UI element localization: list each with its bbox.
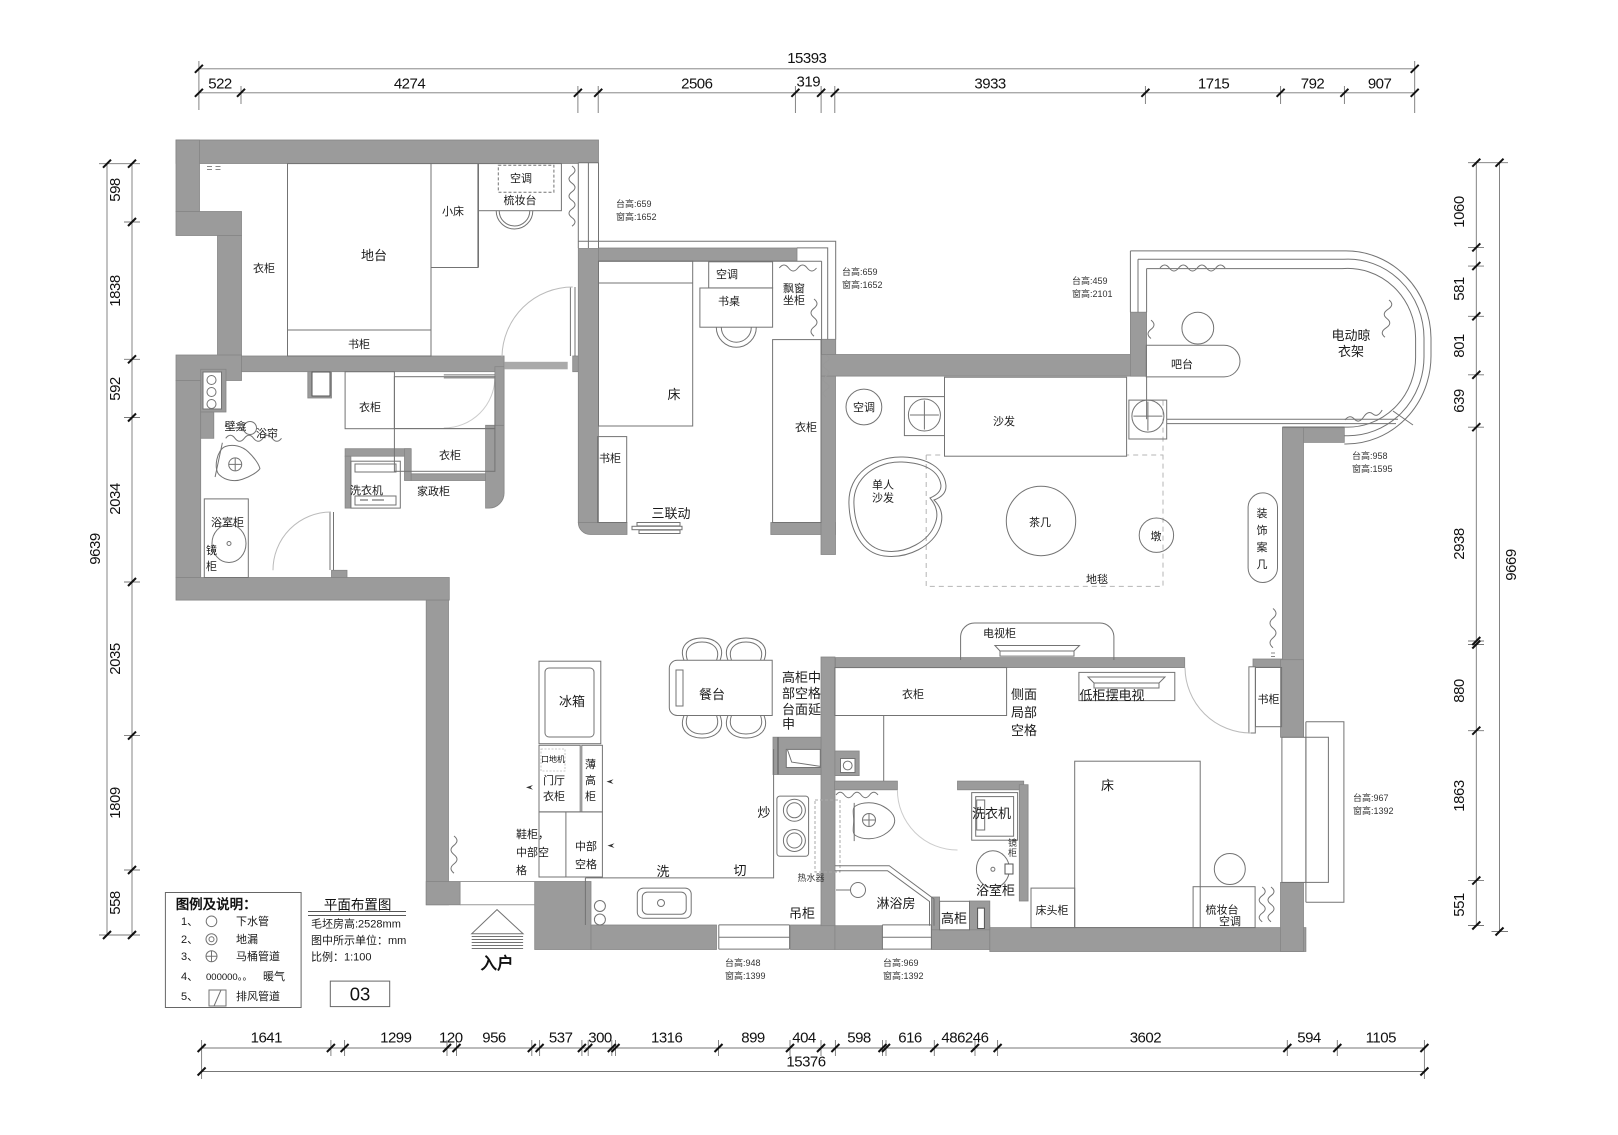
svg-text:衣柜: 衣柜 [359,400,381,414]
svg-text:15393: 15393 [787,50,826,67]
svg-text:衣柜: 衣柜 [902,687,924,701]
svg-text:薄: 薄 [585,757,596,771]
svg-text:书柜: 书柜 [1258,693,1280,706]
svg-text:口地机: 口地机 [541,754,565,764]
svg-text:装: 装 [1257,507,1268,520]
svg-text:956: 956 [482,1030,506,1047]
svg-text:电动晾: 电动晾 [1331,328,1370,343]
svg-text:558: 558 [107,891,124,915]
svg-text:入户: 入户 [481,953,514,973]
svg-text:床: 床 [667,387,680,402]
svg-text:2034: 2034 [107,483,124,515]
svg-text:衣架: 衣架 [1338,344,1364,359]
svg-text:1715: 1715 [1198,76,1230,93]
svg-text:空调: 空调 [853,400,875,414]
svg-text:书柜: 书柜 [348,338,370,351]
svg-text:窗高:1392: 窗高:1392 [1353,805,1394,816]
svg-text:暖气: 暖气 [263,969,285,983]
svg-text:窗高:1652: 窗高:1652 [616,211,657,222]
svg-text:茶几: 茶几 [1029,516,1051,529]
svg-text:图中所示单位：mm: 图中所示单位：mm [311,933,406,947]
svg-text:319: 319 [797,73,821,90]
svg-text:格: 格 [516,863,527,877]
svg-text:台高:659: 台高:659 [842,266,878,277]
svg-text:台高:459: 台高:459 [1072,275,1108,286]
svg-text:616: 616 [898,1030,922,1047]
svg-text:地台: 地台 [361,248,387,263]
svg-text:598: 598 [107,178,124,202]
svg-text:581: 581 [1451,277,1468,301]
svg-text:486: 486 [941,1030,965,1047]
svg-text:907: 907 [1368,76,1392,93]
svg-text:沙发: 沙发 [993,414,1015,428]
svg-text:台高:967: 台高:967 [1353,792,1389,803]
svg-text:图例及说明：: 图例及说明： [176,896,257,912]
svg-text:120: 120 [439,1030,463,1047]
svg-text:窗高:1399: 窗高:1399 [725,970,766,981]
svg-text:000000。。: 000000。。 [206,972,252,983]
svg-text:衣柜: 衣柜 [795,420,817,434]
svg-text:衣柜: 衣柜 [543,789,565,803]
svg-text:5、: 5、 [181,991,198,1003]
svg-text:9639: 9639 [87,533,104,565]
svg-text:电视柜: 电视柜 [983,626,1016,640]
svg-text:1641: 1641 [251,1030,283,1047]
svg-text:餐台: 餐台 [699,687,725,702]
svg-text:801: 801 [1451,334,1468,358]
svg-text:比例：1:100: 比例：1:100 [311,950,372,964]
svg-text:537: 537 [549,1030,573,1047]
svg-text:吧台: 吧台 [1171,357,1193,371]
svg-text:台高:948: 台高:948 [725,957,761,968]
svg-text:饰: 饰 [1257,523,1268,537]
svg-text:1299: 1299 [380,1030,412,1047]
svg-text:空格: 空格 [575,857,597,871]
svg-text:侧面: 侧面 [1011,687,1037,702]
svg-text:切: 切 [733,863,746,878]
svg-text:申: 申 [782,717,795,732]
svg-text:4274: 4274 [394,76,426,93]
svg-text:平面布置图: 平面布置图 [324,898,392,913]
svg-text:300: 300 [588,1030,612,1047]
svg-text:空调: 空调 [716,267,738,281]
svg-text:浴室柜: 浴室柜 [976,883,1015,898]
svg-text:坐柜: 坐柜 [783,294,805,307]
svg-text:衣柜: 衣柜 [439,448,461,462]
svg-text:家政柜: 家政柜 [417,484,450,498]
svg-text:梳妆台: 梳妆台 [504,193,537,207]
svg-text:床头柜: 床头柜 [1036,903,1069,917]
svg-text:下水管: 下水管 [236,914,269,928]
svg-text:门厅: 门厅 [543,773,565,787]
svg-text:9669: 9669 [1503,549,1520,581]
svg-text:台面延: 台面延 [782,702,821,717]
svg-text:1105: 1105 [1366,1030,1396,1047]
svg-text:2035: 2035 [107,643,124,675]
svg-text:马桶管道: 马桶管道 [236,949,280,963]
svg-text:1060: 1060 [1451,196,1468,228]
svg-text:639: 639 [1451,389,1468,413]
svg-text:地毯: 地毯 [1086,572,1108,586]
svg-text:壁龛: 壁龛 [225,419,247,433]
svg-text:03: 03 [350,984,371,1005]
svg-text:洗衣机: 洗衣机 [350,483,383,497]
svg-text:3602: 3602 [1130,1030,1162,1047]
svg-text:2506: 2506 [681,76,713,93]
svg-text:柜: 柜 [206,560,217,573]
svg-text:热水器: 热水器 [797,872,824,883]
svg-text:空调: 空调 [1219,914,1241,928]
svg-text:低柜摆电视: 低柜摆电视 [1079,688,1144,703]
svg-text:899: 899 [741,1030,765,1047]
svg-text:柜: 柜 [585,790,596,803]
svg-text:小床: 小床 [442,204,464,218]
svg-text:2、: 2、 [181,934,198,946]
svg-text:598: 598 [847,1030,871,1047]
svg-text:880: 880 [1451,679,1468,703]
svg-text:衣柜: 衣柜 [253,261,275,275]
svg-text:1、: 1、 [181,916,198,928]
svg-text:4、: 4、 [181,971,198,983]
svg-text:1838: 1838 [107,275,124,307]
svg-text:1316: 1316 [651,1030,683,1047]
svg-text:窗高:1392: 窗高:1392 [883,970,924,981]
svg-text:台高:659: 台高:659 [616,198,652,209]
svg-text:高柜中: 高柜中 [782,670,821,685]
svg-text:高柜: 高柜 [941,911,967,926]
svg-text:522: 522 [208,76,232,93]
svg-text:墩: 墩 [1151,529,1162,543]
svg-text:浴室柜: 浴室柜 [211,515,244,529]
svg-text:高: 高 [585,773,596,787]
svg-text:冰箱: 冰箱 [559,694,585,709]
svg-text:窗高:2101: 窗高:2101 [1072,288,1113,299]
svg-text:中部空: 中部空 [516,845,549,859]
svg-text:洗: 洗 [656,864,669,879]
svg-text:案: 案 [1257,540,1268,554]
svg-text:梳妆台: 梳妆台 [1206,903,1239,917]
svg-text:鞋柜，: 鞋柜， [516,827,549,841]
svg-text:书桌: 书桌 [718,295,740,308]
svg-text:浴帘: 浴帘 [256,426,278,440]
svg-text:空调: 空调 [510,171,532,185]
svg-text:地漏: 地漏 [236,933,258,946]
svg-text:沙发: 沙发 [872,491,894,505]
svg-text:几: 几 [1257,559,1268,571]
svg-text:3、: 3、 [181,951,198,963]
svg-text:中部: 中部 [575,839,597,853]
svg-text:窗高:1595: 窗高:1595 [1352,463,1393,474]
svg-text:空格: 空格 [1011,723,1037,738]
svg-text:柜: 柜 [1008,847,1017,858]
svg-text:书柜: 书柜 [599,452,621,465]
svg-text:镜: 镜 [1008,837,1017,848]
svg-text:592: 592 [107,377,124,401]
svg-text:404: 404 [792,1030,816,1047]
svg-text:淋浴房: 淋浴房 [876,896,915,911]
svg-text:1809: 1809 [107,787,124,819]
svg-text:单人: 单人 [872,479,894,492]
svg-text:2938: 2938 [1451,528,1468,560]
svg-text:792: 792 [1301,76,1325,93]
svg-text:排风管道: 排风管道 [236,989,280,1003]
svg-text:551: 551 [1451,893,1468,917]
svg-text:吊柜: 吊柜 [789,906,815,921]
svg-text:1863: 1863 [1451,780,1468,812]
svg-text:洗衣机: 洗衣机 [972,806,1011,821]
svg-text:台高:969: 台高:969 [883,957,919,968]
svg-text:594: 594 [1297,1030,1321,1047]
svg-text:炒: 炒 [757,805,770,820]
svg-text:246: 246 [965,1030,989,1047]
svg-text:台高:958: 台高:958 [1352,450,1388,461]
svg-text:窗高:1652: 窗高:1652 [842,279,883,290]
svg-text:镜: 镜 [206,543,217,557]
svg-text:局部: 局部 [1011,705,1037,720]
svg-text:三联动: 三联动 [651,506,690,521]
svg-text:飘窗: 飘窗 [783,281,805,295]
svg-text:15376: 15376 [786,1054,825,1071]
svg-text:毛坯房高:2528mm: 毛坯房高:2528mm [311,917,401,931]
svg-text:床: 床 [1101,778,1114,793]
svg-text:3933: 3933 [974,76,1006,93]
svg-text:部空格: 部空格 [782,686,821,701]
